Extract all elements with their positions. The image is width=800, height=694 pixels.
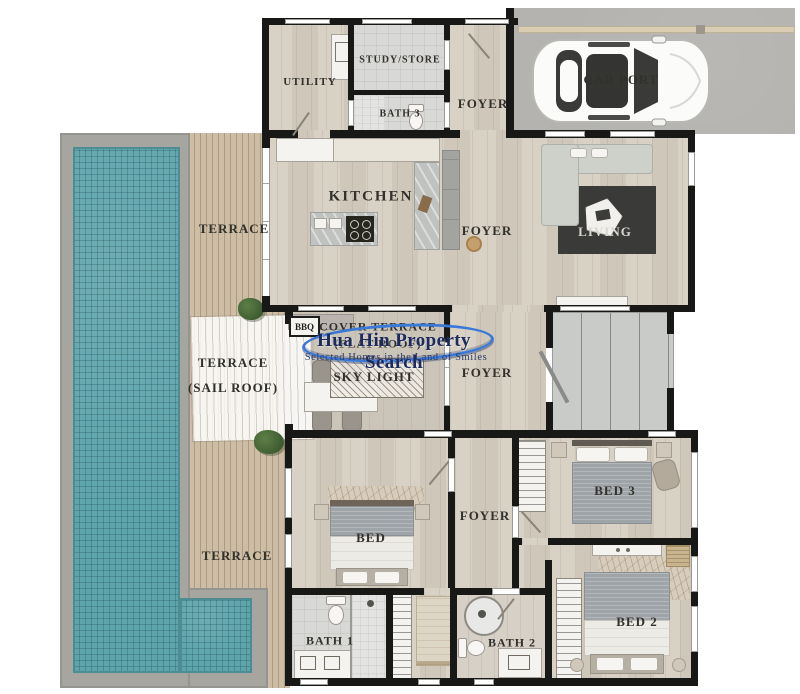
label-terrace-sail-1: TERRACE	[198, 355, 269, 371]
closet-rug	[416, 596, 452, 666]
window	[474, 679, 494, 685]
carport-column	[696, 25, 705, 34]
window	[691, 452, 698, 528]
utility-sink-basin	[335, 42, 349, 62]
swimming-pool-extension	[180, 598, 252, 673]
bed3-pillow	[614, 447, 648, 462]
sofa-pillow	[591, 148, 608, 158]
door-opening	[424, 431, 452, 437]
sofa-pillow	[570, 148, 587, 158]
door-opening	[648, 431, 676, 437]
nightstand	[551, 442, 567, 458]
label-terrace-upper: TERRACE	[199, 221, 270, 237]
door-opening	[512, 506, 519, 538]
window	[545, 131, 585, 137]
bath1-shower	[352, 594, 388, 682]
cooktop-burner	[362, 220, 371, 229]
wall	[513, 130, 695, 138]
stair-panels	[552, 312, 674, 431]
label-bath3: BATH 3	[379, 109, 420, 120]
label-bed2: BED 2	[616, 614, 657, 630]
kitchen-tall-cabinets	[442, 150, 460, 250]
cooktop-burner	[362, 231, 371, 240]
window	[300, 679, 328, 685]
wall	[546, 312, 553, 348]
vanity-sink	[324, 656, 340, 670]
kitchen-cabinet	[276, 138, 334, 162]
side-stool	[570, 658, 584, 672]
wall	[262, 18, 269, 136]
bench-pillow	[342, 571, 368, 584]
wall	[262, 130, 270, 148]
foyer-top-floor	[448, 24, 514, 134]
window	[368, 306, 416, 311]
window	[560, 306, 630, 311]
door-opening	[522, 538, 548, 545]
label-car-port: CAR PORT	[583, 72, 658, 88]
side-stool	[672, 658, 686, 672]
door-opening	[492, 588, 520, 595]
window	[691, 556, 698, 592]
label-terrace-sail-2: (SAIL ROOF)	[188, 380, 278, 396]
label-bath2: BATH 2	[488, 636, 536, 651]
dresser-knob	[626, 548, 630, 552]
plant-icon	[254, 430, 284, 454]
window	[465, 19, 509, 24]
window	[610, 131, 655, 137]
label-foyer-top: FOYER	[458, 96, 509, 112]
wall	[386, 592, 393, 684]
door-opening	[424, 588, 450, 595]
island-sink	[314, 218, 327, 229]
nightstand	[415, 504, 430, 520]
shower-head	[367, 600, 374, 607]
label-living: LIVING	[578, 224, 632, 240]
nightstand	[656, 442, 672, 458]
watermark-tagline: Selected Homes in the Land of Smiles	[296, 352, 496, 363]
window	[285, 468, 292, 518]
bench-pillow	[596, 657, 624, 671]
window	[285, 534, 292, 568]
label-study-store: STUDY/STORE	[359, 55, 440, 66]
window	[688, 152, 695, 186]
label-bath1: BATH 1	[306, 634, 354, 649]
nightstand	[314, 504, 329, 520]
label-terrace-lower: TERRACE	[202, 548, 273, 564]
door-opening	[444, 40, 450, 70]
wall	[330, 130, 460, 138]
label-bed3: BED 3	[594, 483, 635, 499]
bench-pillow	[374, 571, 400, 584]
label-kitchen: KITCHEN	[329, 189, 414, 206]
plant-icon	[238, 298, 264, 320]
bath1-toilet	[326, 596, 346, 605]
window	[418, 679, 440, 685]
bath2-toilet-bowl	[467, 640, 485, 656]
cooktop-burner	[350, 231, 359, 240]
bed3-headboard	[572, 440, 652, 446]
carport-beam	[518, 26, 795, 33]
wall	[545, 560, 552, 684]
wall	[285, 430, 698, 438]
closet-hangers	[392, 594, 412, 682]
vanity-sink	[508, 655, 530, 670]
label-utility: UTILITY	[283, 76, 336, 88]
dresser-knob	[616, 548, 620, 552]
window	[285, 19, 330, 24]
basket	[666, 545, 690, 567]
bath1-toilet-bowl	[328, 605, 344, 625]
door-opening	[448, 458, 455, 492]
label-foyer-lower: FOYER	[460, 508, 511, 524]
wall	[450, 592, 457, 684]
window	[691, 606, 698, 652]
label-bed: BED	[356, 530, 386, 546]
cooktop-burner	[350, 220, 359, 229]
island-sink	[329, 218, 342, 229]
wall	[506, 8, 514, 138]
shower-head	[478, 610, 486, 618]
window	[298, 306, 344, 311]
vanity-sink	[300, 656, 316, 670]
floor-plan: UTILITY STUDY/STORE BATH 3 FOYER CAR POR…	[0, 0, 800, 694]
bed3-pillow	[576, 447, 610, 462]
window	[362, 19, 412, 24]
wall	[352, 90, 448, 95]
door-opening	[444, 102, 450, 128]
bench-pillow	[630, 657, 658, 671]
swimming-pool	[73, 147, 180, 673]
bath2-toilet	[458, 638, 467, 658]
wall	[667, 388, 674, 436]
door-opening	[348, 100, 354, 126]
label-foyer-main: FOYER	[462, 223, 513, 239]
wall	[667, 312, 674, 334]
bed3-wardrobe	[518, 440, 546, 512]
open-passage	[452, 305, 544, 312]
